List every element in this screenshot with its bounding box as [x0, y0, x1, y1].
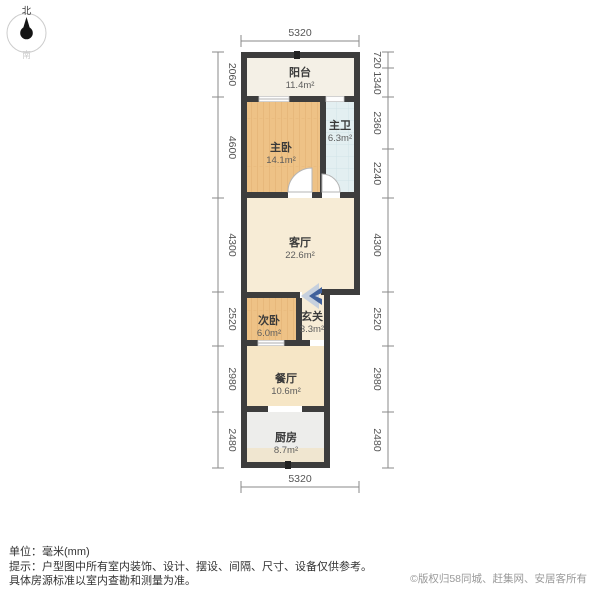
master-bedroom-area: 14.1m² [266, 155, 296, 166]
dining-room-label: 餐厅 [274, 371, 297, 385]
dim-left-0: 2060 [226, 63, 238, 87]
master-bedroom-label: 主卧 [270, 140, 292, 154]
living-room-area: 22.6m² [285, 250, 315, 261]
second-bedroom-area: 6.0m² [257, 328, 281, 339]
wall-master-bottom-mid [312, 192, 322, 198]
dim-left-5: 2480 [226, 428, 238, 452]
dim-right-2: 2360 [371, 111, 383, 135]
floorplan-svg: 北 南 [0, 0, 600, 600]
dimension-right: 720 1340 2360 2240 4300 2520 2980 2480 [371, 51, 394, 468]
unit-note: 单位：毫米(mm) [9, 545, 591, 560]
wall-second-top [241, 292, 300, 298]
dim-right-7: 2480 [371, 428, 383, 452]
copyright-notice: ©版权归58同城、赶集网、安居客所有 [410, 571, 587, 586]
dining-room-area: 10.6m² [271, 386, 301, 397]
wall-second-bottom-right [284, 340, 310, 346]
dim-left-2: 4300 [226, 233, 238, 257]
master-bath-label: 主卫 [329, 118, 351, 132]
wall-marker-bottom [285, 461, 291, 469]
entry-hall-area: 3.3m² [300, 324, 324, 335]
compass-south-label: 南 [22, 49, 31, 60]
floorplan-canvas: 北 南 [0, 0, 600, 600]
dim-right-1: 1340 [371, 71, 383, 95]
dim-right-4: 4300 [371, 233, 383, 257]
dim-right-5: 2520 [371, 307, 383, 331]
wall-left [241, 52, 247, 468]
wall-master-bottom-right [340, 192, 354, 198]
master-bath-area: 6.3m² [328, 133, 352, 144]
wall-balcony-left [247, 96, 259, 102]
kitchen-area: 8.7m² [274, 445, 298, 456]
dim-bottom-value: 5320 [288, 473, 312, 485]
wall-second-bottom-left [247, 340, 258, 346]
wall-balcony-mid [289, 96, 326, 102]
compass-needle-base [20, 27, 33, 40]
kitchen-label: 厨房 [275, 430, 297, 444]
wall-top [241, 52, 360, 58]
wall-right-lower [324, 289, 330, 468]
balcony-label: 阳台 [289, 65, 311, 79]
dim-right-3: 2240 [371, 162, 383, 186]
entry-hall-label: 玄关 [301, 309, 323, 323]
dim-left-4: 2980 [226, 367, 238, 391]
dimension-bottom: 5320 [241, 473, 359, 493]
compass-north-label: 北 [22, 6, 32, 17]
wall-balcony-right [344, 96, 354, 102]
second-bedroom-label: 次卧 [258, 313, 280, 327]
living-room-label: 客厅 [288, 235, 311, 249]
dimension-left: 2060 4600 4300 2520 2980 2480 [212, 52, 238, 468]
dim-right-0: 720 [371, 51, 383, 69]
compass: 北 南 [7, 6, 46, 60]
wall-kitchen-top-right [302, 406, 324, 412]
wall-kitchen-top-left [241, 406, 268, 412]
wall-marker-top [294, 51, 300, 59]
dim-left-1: 4600 [226, 136, 238, 160]
dimension-top: 5320 [241, 27, 359, 47]
bath-window [326, 97, 344, 102]
wall-master-bottom-left [247, 192, 288, 198]
wall-right-upper [354, 52, 360, 295]
balcony-area: 11.4m² [286, 80, 315, 91]
dim-right-6: 2980 [371, 367, 383, 391]
dim-top-value: 5320 [288, 27, 312, 39]
dim-left-3: 2520 [226, 307, 238, 331]
